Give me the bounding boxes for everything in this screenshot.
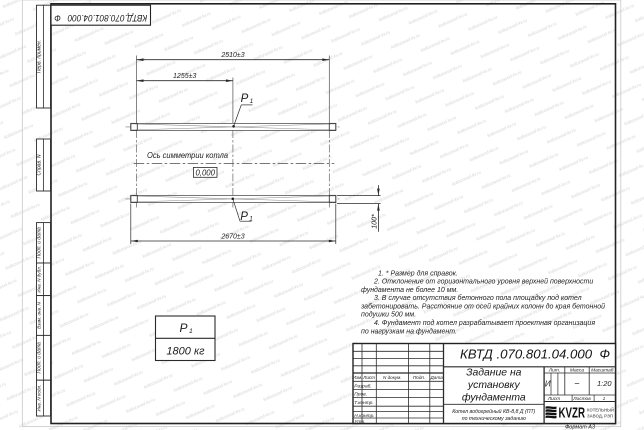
svg-text:1: 1 — [249, 215, 253, 222]
svg-text:Т.контр.: Т.контр. — [354, 400, 373, 406]
svg-text:P: P — [241, 93, 249, 105]
svg-text:Разраб.: Разраб. — [354, 384, 371, 390]
svg-text:1255±3: 1255±3 — [173, 73, 196, 80]
svg-text:0,000: 0,000 — [195, 168, 215, 177]
svg-text:Котел водогрейный КВ-8,8 Д (ПТ: Котел водогрейный КВ-8,8 Д (ПТ) — [452, 408, 535, 415]
svg-text:установку: установку — [467, 380, 521, 391]
svg-text:Дата: Дата — [430, 375, 444, 380]
svg-text:N докум.: N докум. — [383, 375, 402, 380]
svg-text:2. Отклонение от горизонтально: 2. Отклонение от горизонтального уровня … — [373, 278, 593, 286]
svg-text:1: 1 — [189, 328, 193, 335]
svg-text:1: 1 — [603, 396, 606, 402]
svg-text:ЗАВОД, РЭП: ЗАВОД, РЭП — [587, 414, 613, 419]
svg-text:Масштаб: Масштаб — [591, 367, 614, 373]
svg-text:Перв. примен.: Перв. примен. — [37, 40, 43, 73]
svg-text:фундамента: фундамента — [462, 392, 526, 404]
svg-text:КВТД .070.801.04.000 Ф: КВТД .070.801.04.000 Ф — [460, 347, 610, 362]
svg-text:–: – — [574, 379, 580, 388]
svg-text:подушки 500 мм.: подушки 500 мм. — [361, 311, 416, 319]
svg-text:1800 кг: 1800 кг — [166, 346, 205, 358]
svg-text:Утв.: Утв. — [354, 419, 365, 425]
svg-text:Изм.: Изм. — [353, 375, 363, 380]
svg-text:3. В случае отсутствия бетонно: 3. В случае отсутствия бетонного пола пл… — [374, 294, 582, 302]
svg-text:Взам. инв. N: Взам. инв. N — [37, 301, 42, 328]
svg-text:по нагрузкам на фундамент.: по нагрузкам на фундамент. — [361, 328, 457, 336]
svg-text:1: 1 — [250, 98, 254, 105]
svg-text:Подп. и дата: Подп. и дата — [37, 227, 43, 259]
svg-text:фундамента не более 10 мм.: фундамента не более 10 мм. — [361, 286, 458, 294]
svg-text:Лист: Лист — [547, 396, 560, 402]
svg-text:Подп.: Подп. — [413, 375, 425, 380]
svg-text:100*: 100* — [371, 214, 378, 229]
svg-text:КОТЕЛЬНЫЙ: КОТЕЛЬНЫЙ — [587, 405, 614, 412]
svg-text:2670±3: 2670±3 — [220, 233, 244, 240]
svg-text:по техническому заданию: по техническому заданию — [462, 416, 526, 422]
svg-text:Справ. N: Справ. N — [37, 154, 43, 175]
svg-text:Формат А3: Формат А3 — [565, 424, 596, 430]
svg-text:КВТД.070.801.04.000 Ф: КВТД.070.801.04.000 Ф — [54, 12, 147, 23]
svg-text:4. Фундамент под котел разраба: 4. Фундамент под котел разрабатывает про… — [374, 319, 595, 327]
svg-text:Инв. N подл.: Инв. N подл. — [37, 385, 42, 412]
svg-text:Лит.: Лит. — [548, 367, 560, 373]
svg-text:Задание на: Задание на — [466, 368, 522, 379]
svg-text:1:20: 1:20 — [597, 379, 612, 388]
svg-text:Листов: Листов — [572, 396, 591, 402]
svg-text:И: И — [545, 380, 551, 389]
svg-text:P: P — [240, 211, 248, 223]
svg-text:1. * Размер для справок.: 1. * Размер для справок. — [378, 270, 458, 278]
svg-text:Н.контр.: Н.контр. — [354, 413, 374, 419]
svg-text:Инв. N дубл.: Инв. N дубл. — [37, 266, 42, 293]
svg-text:KVZR: KVZR — [559, 406, 586, 422]
svg-text:Пров.: Пров. — [354, 392, 367, 398]
svg-text:Лист: Лист — [362, 375, 375, 380]
svg-text:Ось симметрии котла: Ось симметрии котла — [147, 151, 228, 160]
svg-text:P: P — [180, 321, 188, 335]
svg-text:Подп. и дата: Подп. и дата — [37, 342, 43, 374]
svg-text:Масса: Масса — [570, 367, 585, 373]
svg-text:2510±3: 2510±3 — [220, 52, 244, 59]
svg-text:забетонировать. Расстояние от: забетонировать. Расстояние от осей крайн… — [360, 303, 605, 311]
